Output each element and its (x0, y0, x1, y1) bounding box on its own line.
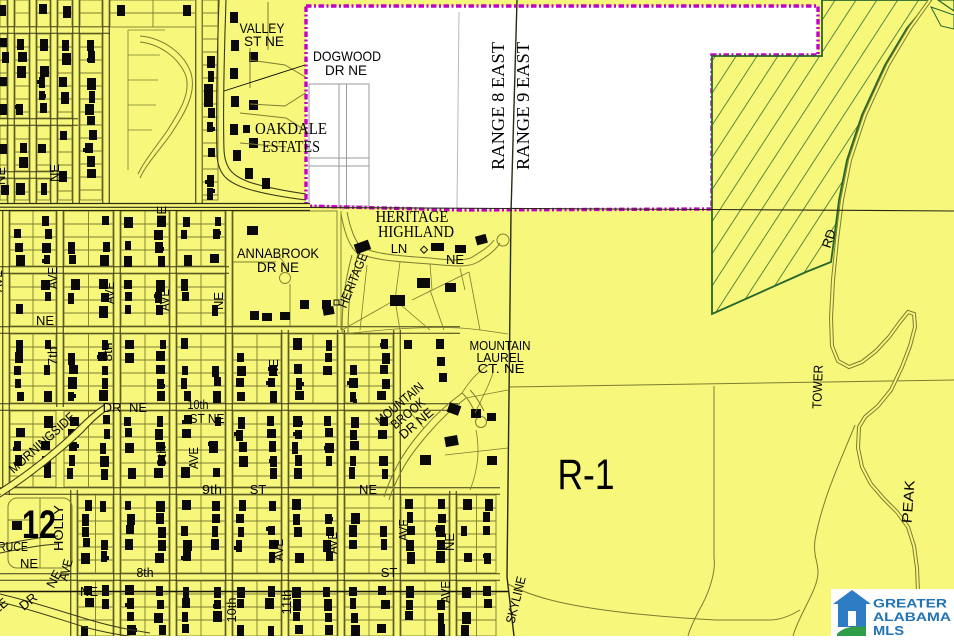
svg-text:ST NE: ST NE (244, 33, 284, 49)
svg-text:9th: 9th (202, 482, 222, 497)
svg-text:TOWER: TOWER (809, 365, 826, 409)
svg-text:NE: NE (129, 400, 147, 415)
svg-text:RANGE 8 EAST: RANGE 8 EAST (488, 42, 508, 170)
svg-text:AVE: AVE (325, 532, 340, 554)
svg-text:PEAK: PEAK (899, 479, 918, 524)
svg-text:OAKDALE: OAKDALE (255, 119, 327, 138)
svg-text:RUCE: RUCE (0, 539, 28, 554)
svg-text:NE: NE (211, 292, 226, 310)
svg-text:NE: NE (36, 313, 54, 328)
svg-text:ST NE: ST NE (190, 411, 225, 426)
svg-text:HIGHLAND: HIGHLAND (378, 222, 454, 241)
svg-text:ST: ST (250, 482, 267, 497)
svg-text:8th: 8th (137, 565, 154, 580)
svg-text:LN: LN (391, 241, 408, 256)
svg-text:MLS: MLS (873, 624, 904, 636)
svg-text:DR NE: DR NE (325, 62, 367, 78)
svg-text:AVE: AVE (186, 447, 201, 469)
svg-text:AVE: AVE (396, 519, 411, 541)
svg-text:AVE: AVE (271, 539, 286, 561)
svg-text:AVE: AVE (45, 267, 60, 289)
svg-text:7th: 7th (45, 347, 60, 366)
svg-text:10th: 10th (188, 397, 209, 412)
svg-text:NE: NE (359, 482, 377, 497)
svg-text:10th: 10th (224, 598, 239, 623)
svg-text:NE: NE (80, 584, 98, 599)
svg-text:NE: NE (154, 206, 169, 224)
svg-text:9th: 9th (154, 446, 169, 467)
svg-text:CT. NE: CT. NE (478, 361, 525, 376)
svg-text:AVE: AVE (0, 270, 5, 292)
svg-text:DR NE: DR NE (257, 259, 299, 275)
svg-text:11th: 11th (279, 590, 294, 615)
svg-text:R-1: R-1 (558, 451, 615, 499)
svg-text:RANGE 9 EAST: RANGE 9 EAST (513, 42, 533, 170)
svg-text:ESTATES: ESTATES (262, 137, 320, 156)
svg-text:HOLLY: HOLLY (51, 505, 66, 551)
svg-text:ALABAMA: ALABAMA (873, 610, 951, 624)
svg-text:DR: DR (103, 400, 122, 415)
svg-text:GREATER: GREATER (873, 599, 948, 611)
svg-text:AVE: AVE (102, 282, 117, 304)
svg-text:ST: ST (381, 565, 398, 580)
svg-text:NE: NE (442, 533, 457, 551)
svg-text:NE: NE (47, 164, 62, 182)
svg-text:AVE: AVE (438, 581, 453, 603)
svg-text:8th: 8th (100, 343, 115, 362)
svg-text:NE: NE (446, 252, 464, 267)
svg-text:NE: NE (20, 556, 38, 571)
svg-text:NE: NE (0, 167, 8, 185)
svg-text:NE: NE (266, 359, 281, 377)
svg-text:AVE: AVE (157, 289, 172, 311)
